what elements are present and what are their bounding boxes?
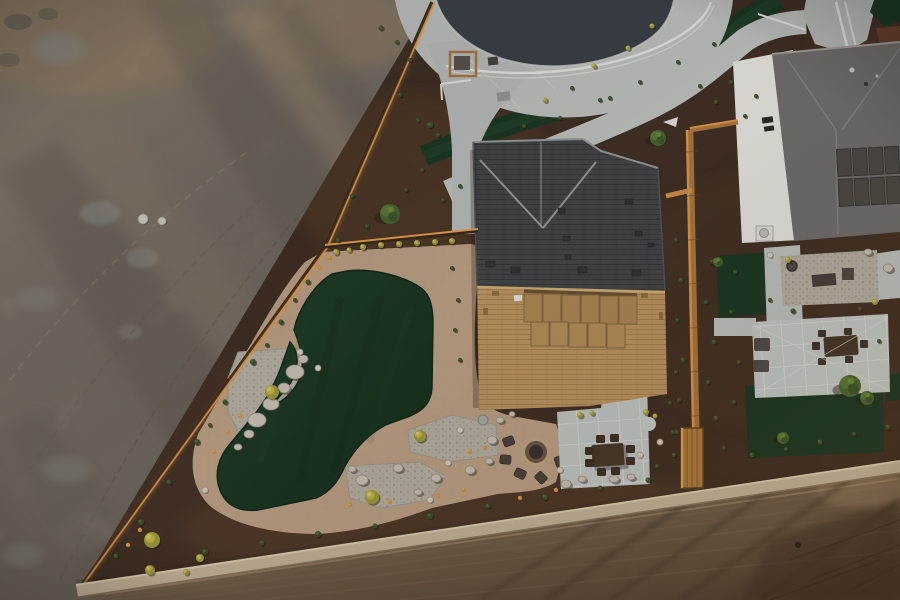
aerial-photo: [0, 0, 900, 600]
vignette: [0, 0, 900, 600]
aerial-photo-canvas: [0, 0, 900, 600]
